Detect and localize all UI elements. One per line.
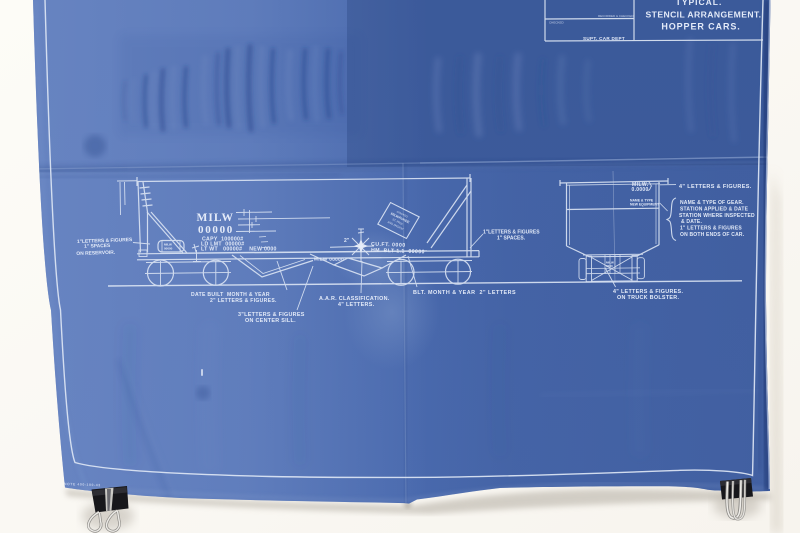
svg-text:4" LETTERS & FIGURES.: 4" LETTERS & FIGURES. bbox=[613, 289, 683, 295]
svg-text:1" LETTERS & FIGURES: 1" LETTERS & FIGURES bbox=[680, 226, 742, 232]
svg-text:STATION WHERE INSPECTED: STATION WHERE INSPECTED bbox=[679, 213, 755, 219]
svg-text:0.0000: 0.0000 bbox=[632, 187, 649, 193]
svg-text:1" SPACES: 1" SPACES bbox=[84, 243, 111, 250]
svg-text:00000: 00000 bbox=[198, 224, 234, 236]
svg-text:0000: 0000 bbox=[606, 264, 613, 268]
svg-text:2" LETTERS & FIGURES.: 2" LETTERS & FIGURES. bbox=[210, 298, 277, 304]
svg-text:00000: 00000 bbox=[164, 247, 173, 251]
svg-text:CHECKED: CHECKED bbox=[549, 21, 565, 25]
svg-text:MILW 00000: MILW 00000 bbox=[314, 257, 344, 263]
svg-text:RECORDED & CHECKED: RECORDED & CHECKED bbox=[598, 14, 634, 18]
svg-text:NAME & TYPE OF GEAR.: NAME & TYPE OF GEAR. bbox=[680, 200, 744, 206]
svg-text:STATION APPLIED & DATE: STATION APPLIED & DATE bbox=[680, 206, 749, 212]
svg-text:STENCIL ARRANGEMENT.: STENCIL ARRANGEMENT. bbox=[646, 10, 762, 20]
svg-text:TYPICAL.: TYPICAL. bbox=[676, 0, 723, 7]
svg-text:ON TRUCK BOLSTER.: ON TRUCK BOLSTER. bbox=[617, 295, 680, 301]
svg-text:ON BOTH ENDS OF CAR.: ON BOTH ENDS OF CAR. bbox=[680, 232, 745, 238]
svg-text:HOPPER CARS.: HOPPER CARS. bbox=[661, 22, 740, 32]
svg-text:& DATE.: & DATE. bbox=[681, 219, 702, 225]
svg-text:2": 2" bbox=[344, 238, 350, 244]
svg-text:MILW: MILW bbox=[197, 212, 234, 224]
svg-text:4" LETTERS & FIGURES.: 4" LETTERS & FIGURES. bbox=[679, 184, 752, 190]
svg-text:LT WT 00000# NEW 0000: LT WT 00000# NEW 0000 bbox=[201, 247, 277, 253]
svg-text:4" LETTERS.: 4" LETTERS. bbox=[338, 302, 375, 308]
svg-text:BLT. MONTH & YEAR 2" LETTERS: BLT. MONTH & YEAR 2" LETTERS bbox=[413, 290, 516, 296]
svg-text:SUPT. CAR DEPT: SUPT. CAR DEPT bbox=[583, 36, 625, 41]
svg-text:ON CENTER SILL.: ON CENTER SILL. bbox=[245, 318, 296, 324]
svg-text:1" SPACES.: 1" SPACES. bbox=[497, 236, 526, 242]
svg-text:NEW EQUIPMENT: NEW EQUIPMENT bbox=[630, 203, 660, 207]
